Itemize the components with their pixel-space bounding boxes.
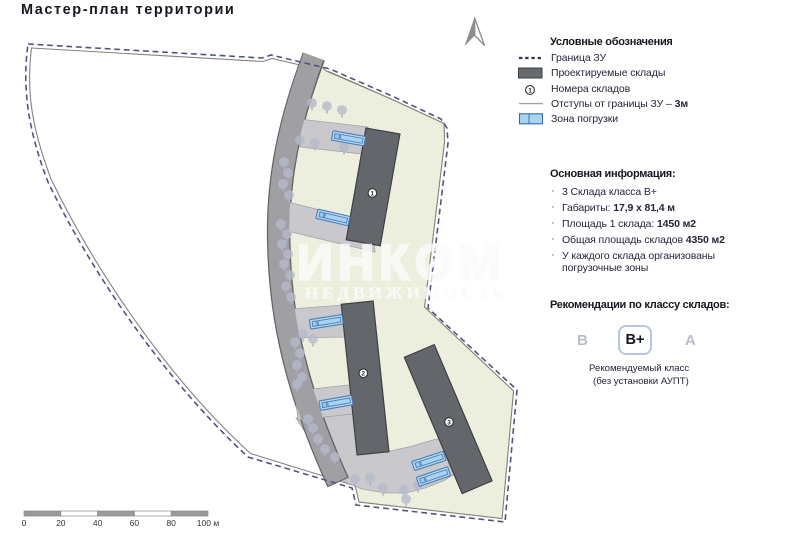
svg-text:0: 0	[22, 518, 27, 528]
svg-text:ИНКОМ: ИНКОМ	[297, 235, 505, 291]
svg-text:2: 2	[362, 371, 366, 378]
svg-text:НЕДВИЖИМОСТЬ: НЕДВИЖИМОСТЬ	[305, 284, 508, 303]
svg-text:1: 1	[371, 190, 375, 197]
svg-text:3: 3	[447, 419, 451, 426]
svg-text:1: 1	[528, 88, 532, 95]
svg-text:80: 80	[166, 518, 176, 528]
svg-text:100 м: 100 м	[197, 518, 220, 528]
svg-text:60: 60	[130, 518, 140, 528]
svg-text:40: 40	[93, 518, 103, 528]
svg-text:20: 20	[56, 518, 66, 528]
